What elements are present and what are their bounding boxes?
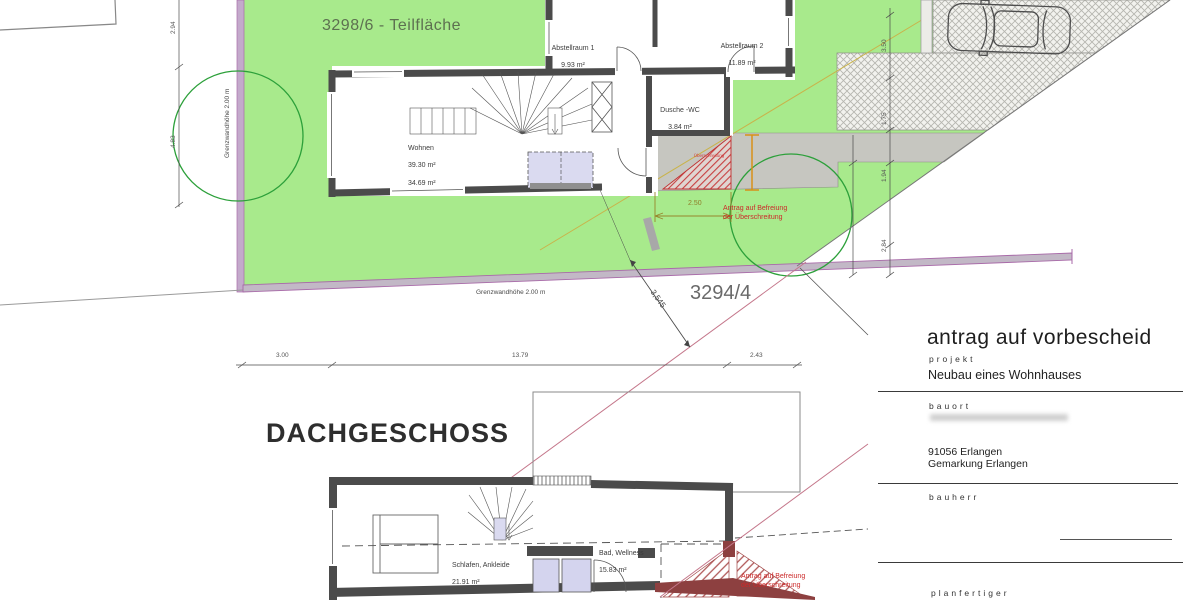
location-label: bauort [929, 401, 971, 412]
dim-right-2: 1.75 [881, 112, 889, 125]
divider-line-2 [878, 483, 1178, 484]
divider-line-3 [878, 562, 1183, 563]
dim-bottom-2: 13.79 [512, 352, 528, 360]
shower-icon [533, 559, 591, 592]
architectural-plan-sheet: 3298/6 - Teilfläche 3294/4 Grenzwandhöhe… [0, 0, 1200, 600]
parcel-label-neighbor: 3294/4 [690, 281, 751, 306]
project-label: projekt [929, 354, 976, 365]
signature-line [1060, 539, 1172, 540]
dim-bottom-3: 2.43 [750, 352, 763, 360]
dim-bottom-1: 3.00 [276, 352, 289, 360]
room-label-dusche: Dusche -WC 3.84 m² [645, 98, 715, 142]
interior-wall [527, 546, 593, 556]
room-label-bad: Bad, Wellness 15.83 m² [599, 541, 644, 585]
exceedance-note-attic: Antrag auf Befreiung der Überschreitung [741, 572, 826, 591]
client-label: bauherr [929, 492, 979, 503]
room-label-abstellraum1: Abstellraum 1 9.93 m² [534, 36, 612, 80]
dim-left-upper: 2.94 [170, 21, 178, 34]
dim-right-1: 3.50 [881, 39, 889, 52]
room-label-schlafen: Schlafen, Ankleide 21.91 m² [452, 553, 510, 597]
dim-right-4: 2.84 [881, 239, 889, 252]
fence-strip [921, 0, 932, 53]
sheet-title: antrag auf vorbescheid [927, 325, 1152, 351]
neighbor-building-outline [0, 0, 116, 30]
divider-line-1 [878, 391, 1183, 392]
bed-icon [373, 515, 438, 573]
wall-note-bottom: Grenzwandhöhe 2.00 m [476, 289, 545, 297]
shaft-x-icon [592, 82, 612, 132]
project-name: Neubau eines Wohnhauses [928, 368, 1081, 384]
planner-label: planfertiger [931, 588, 1010, 599]
dim-entry-width: 2.50 [688, 200, 702, 209]
location-district: Gemarkung Erlangen [928, 458, 1028, 471]
attic-plan-title: DACHGESCHOSS [266, 417, 509, 451]
redacted-address [930, 414, 1068, 421]
wall-note-left: Grenzwandhöhe 2.00 m [224, 89, 232, 158]
room-label-wohnen: Wohnen 39.30 m² 34.69 m² [408, 136, 436, 197]
site-plan-drawing [0, 0, 1200, 600]
dim-right-3: 1.94 [881, 169, 889, 182]
exceedance-note-ground: Antrag auf Befreiung der Überschreitung [723, 204, 808, 223]
boundary-wall-left [0, 0, 244, 305]
parcel-label-main: 3298/6 - Teilfläche [322, 16, 461, 36]
room-label-abstellraum2: Abstellraum 2 11.89 m² [703, 34, 781, 78]
terrace-door [528, 152, 593, 189]
dim-left-lower: 4.83 [170, 135, 178, 148]
exceedance-triangle-label: Überschreitung [688, 153, 730, 158]
